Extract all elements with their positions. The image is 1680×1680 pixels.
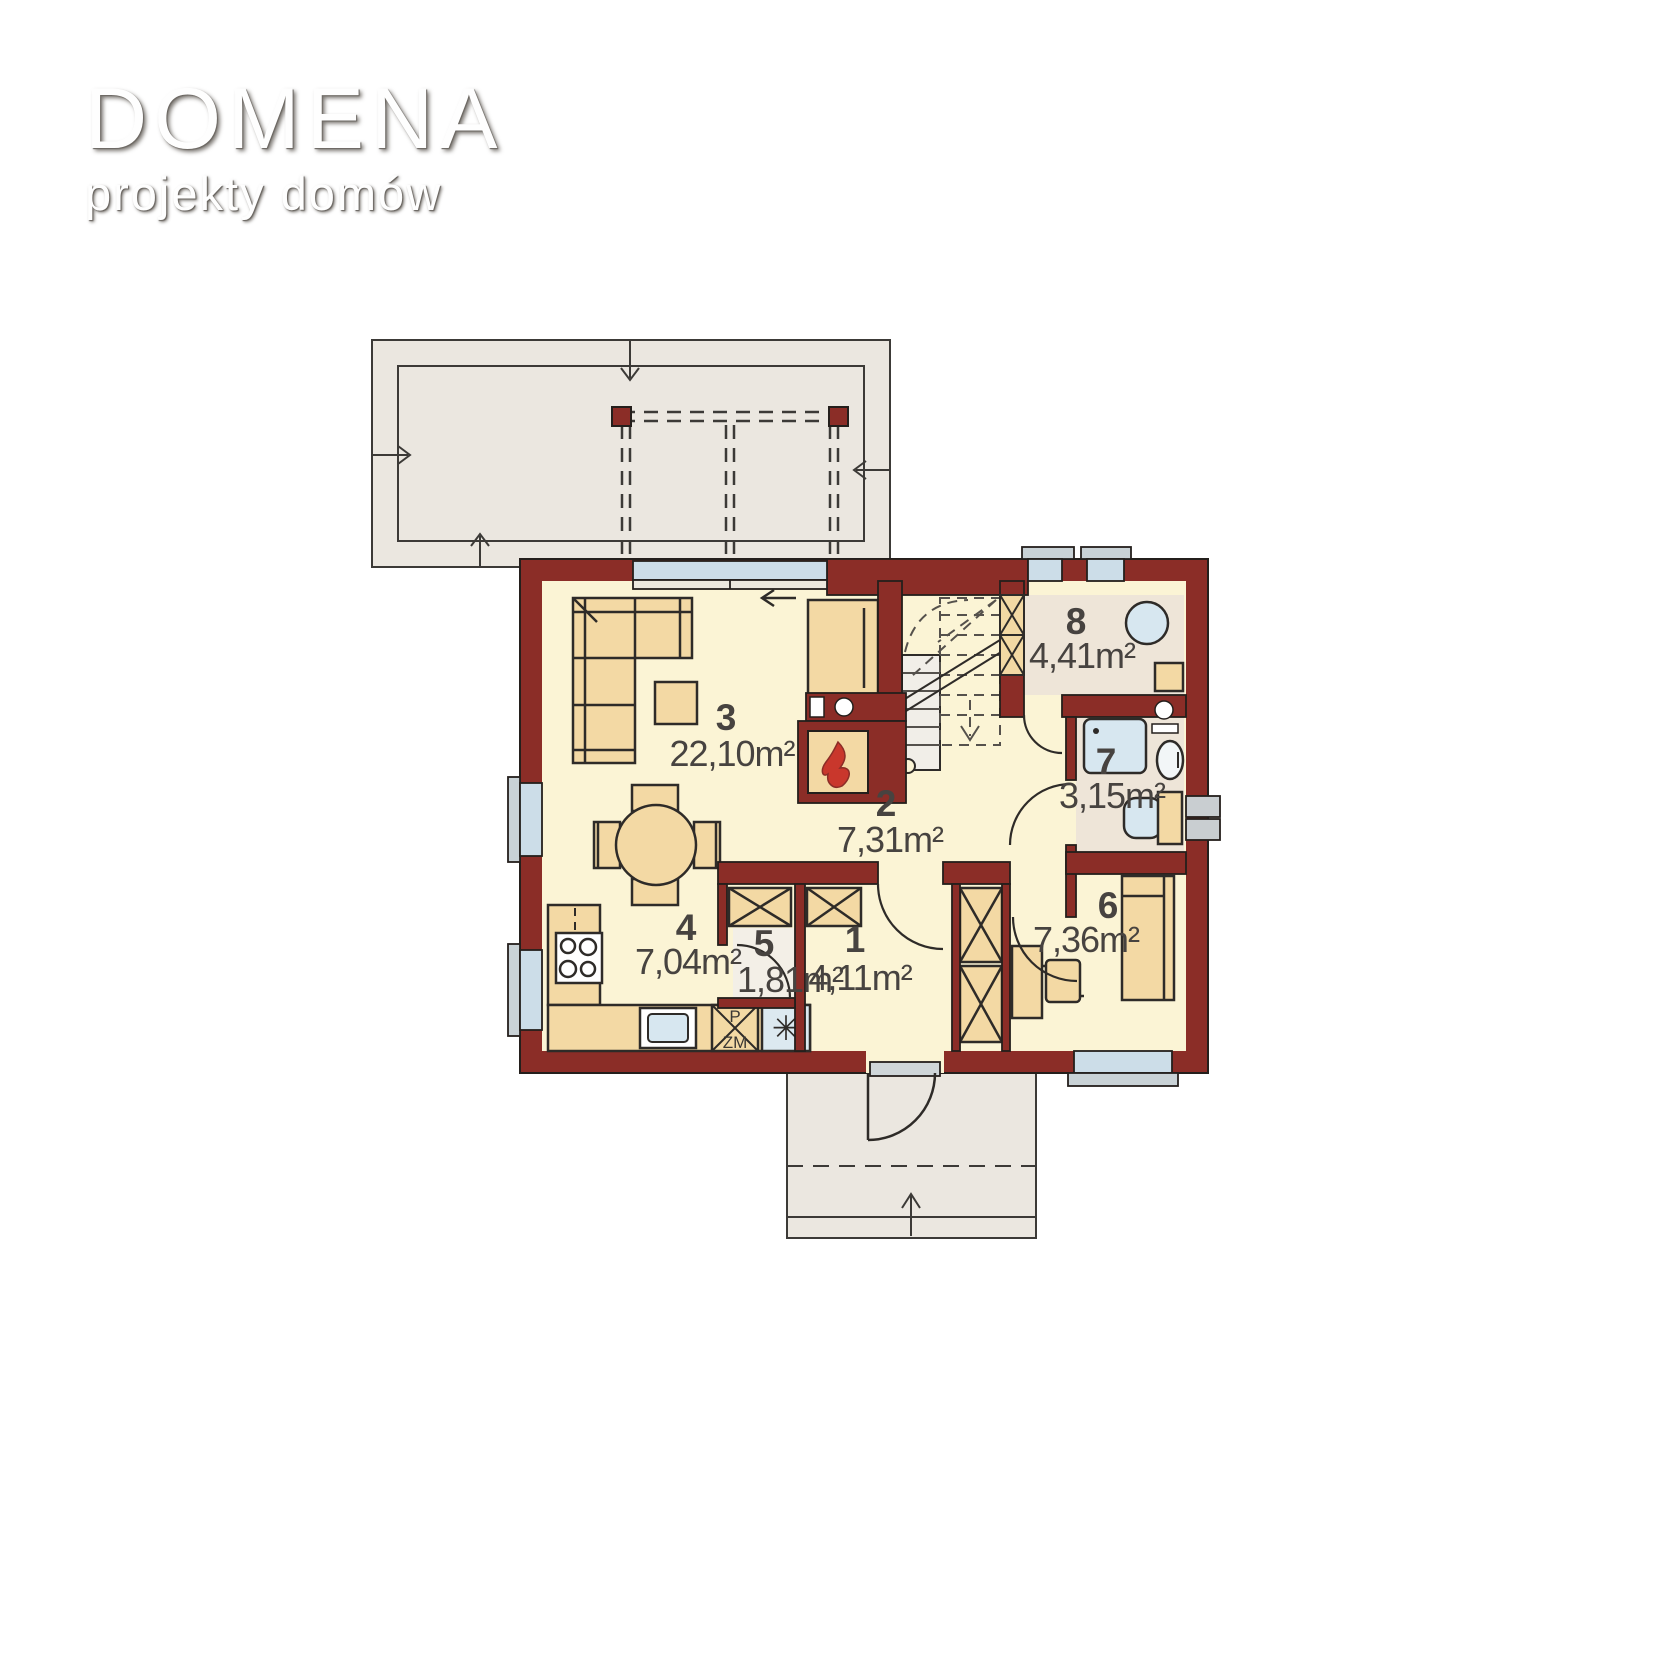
pergola-post bbox=[612, 407, 631, 426]
pergola-post bbox=[829, 407, 848, 426]
fireplace-accessory bbox=[835, 698, 853, 716]
window bbox=[1028, 559, 1062, 581]
stair-shelf bbox=[1000, 595, 1024, 675]
entrance-porch bbox=[787, 1073, 1036, 1238]
window-sill bbox=[1022, 547, 1074, 559]
window-sill bbox=[508, 944, 520, 1036]
wall bbox=[1000, 581, 1024, 595]
wall bbox=[827, 559, 1028, 595]
desk-chair bbox=[1042, 960, 1084, 1002]
window bbox=[1087, 559, 1124, 581]
wall bbox=[943, 862, 1010, 884]
page: DOMENA projekty domów bbox=[0, 0, 1680, 1680]
window bbox=[1074, 1051, 1172, 1073]
sliding-door bbox=[633, 561, 827, 580]
front-door-threshold bbox=[870, 1062, 940, 1076]
room-8-area: 4,41m² bbox=[1029, 635, 1136, 676]
room-4-area: 7,04m² bbox=[635, 941, 742, 982]
room-5-area: 1,81m² bbox=[737, 959, 844, 1000]
window bbox=[520, 950, 542, 1030]
room-2-number: 2 bbox=[876, 783, 897, 824]
room-3-area: 22,10m² bbox=[669, 733, 795, 774]
wall bbox=[1066, 717, 1076, 780]
hob bbox=[556, 933, 602, 983]
wall bbox=[1000, 675, 1024, 717]
room-3-number: 3 bbox=[716, 697, 737, 738]
tv-cabinet bbox=[808, 600, 878, 696]
room-7-area: 3,15m² bbox=[1059, 775, 1166, 816]
room-5-number: 5 bbox=[754, 923, 775, 964]
bathroom-accessory bbox=[1155, 701, 1173, 719]
appliance-label-top: P bbox=[729, 1007, 740, 1026]
window-sill bbox=[1068, 1073, 1178, 1086]
room-6-area: 7,36m² bbox=[1033, 919, 1140, 960]
wall bbox=[952, 884, 960, 1051]
window-sill bbox=[1081, 547, 1131, 559]
terrace bbox=[372, 340, 890, 567]
window bbox=[520, 783, 542, 856]
appliance-label-bottom: ZM bbox=[723, 1033, 748, 1052]
wall bbox=[1066, 852, 1186, 874]
side-table bbox=[655, 682, 697, 724]
room-1-number: 1 bbox=[845, 919, 866, 960]
wall bbox=[718, 884, 727, 945]
bathroom-shelf bbox=[1152, 724, 1178, 733]
room-2-area: 7,31m² bbox=[837, 819, 944, 860]
sink bbox=[640, 1008, 696, 1048]
floor-plan: P ZM ✳ bbox=[0, 0, 1680, 1680]
fireplace-accessory bbox=[810, 697, 824, 717]
wall bbox=[1002, 884, 1010, 1051]
cabinet bbox=[1155, 663, 1183, 691]
window-sill bbox=[508, 777, 520, 862]
dishwasher-icon: P ZM bbox=[712, 1005, 758, 1052]
washbasin bbox=[1157, 741, 1183, 779]
wall bbox=[718, 862, 878, 884]
